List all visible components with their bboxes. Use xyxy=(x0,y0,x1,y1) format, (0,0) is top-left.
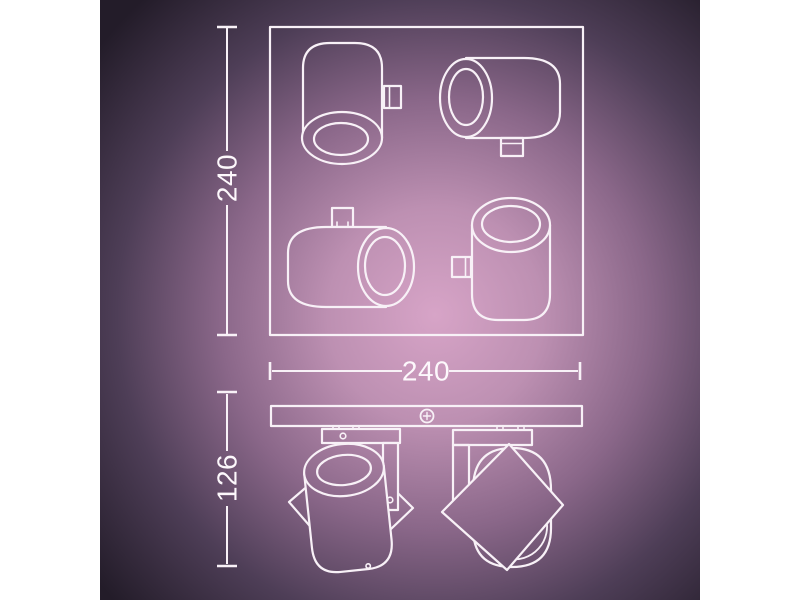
bracket-plate xyxy=(322,429,400,443)
dimension-label-plate-width: 240 xyxy=(402,356,450,387)
product-dimension-drawing: 240 240 126 xyxy=(100,0,700,600)
dimension-label-fixture-height: 126 xyxy=(212,454,243,502)
bracket-plate xyxy=(453,430,532,445)
screw-head-icon xyxy=(421,410,434,423)
cylinder-head xyxy=(302,440,395,575)
dimension-label-plate-height: 240 xyxy=(212,154,243,202)
